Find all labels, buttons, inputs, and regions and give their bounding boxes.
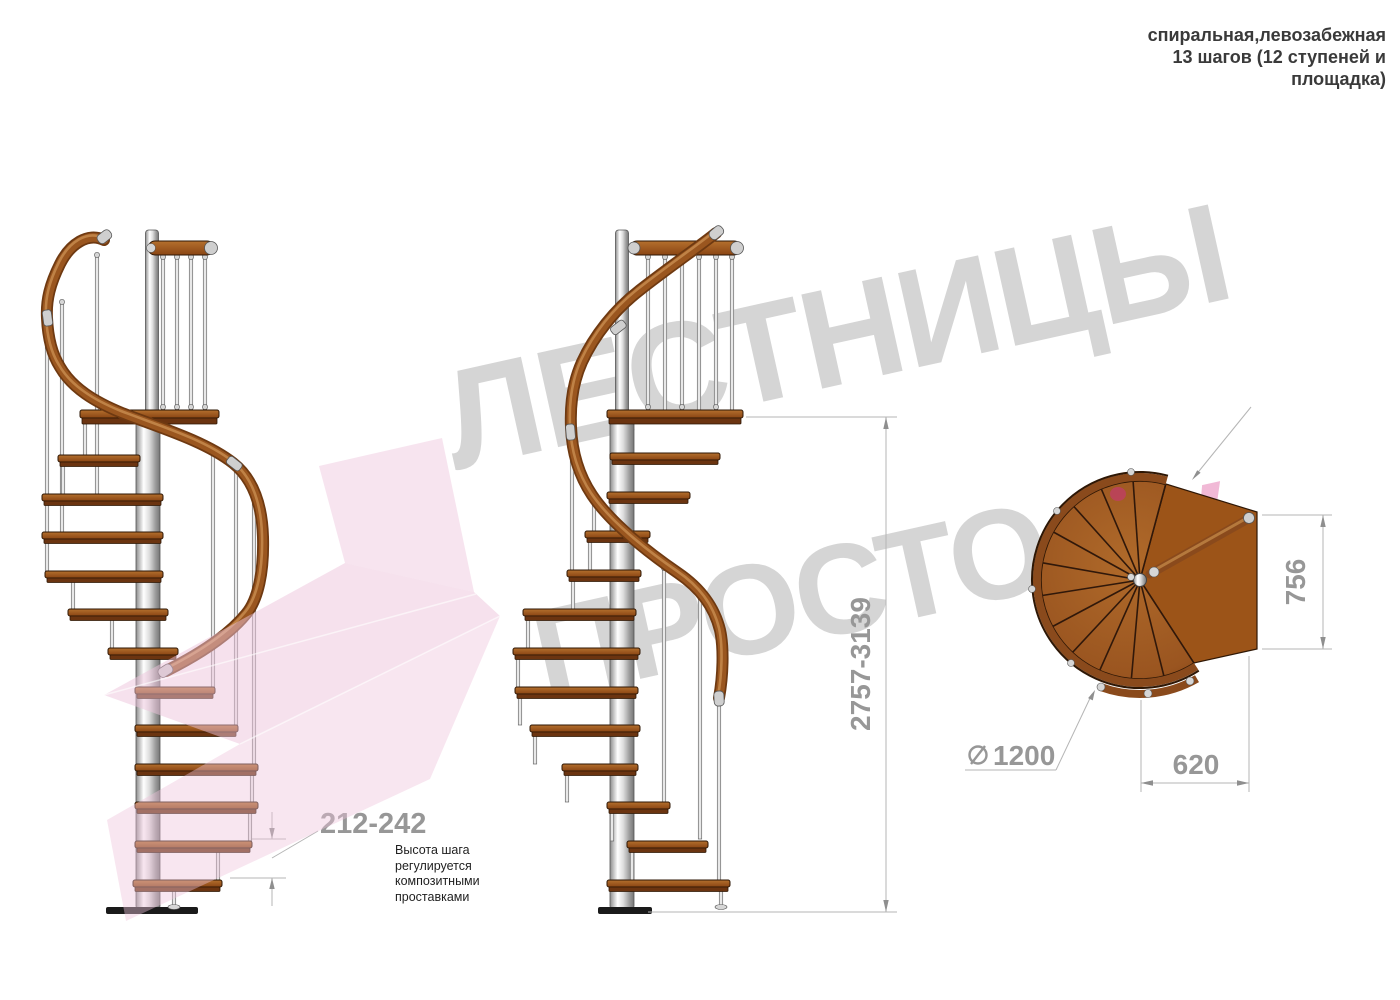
step [135,764,258,776]
plan-center-pole [1134,574,1147,587]
step [607,492,690,504]
title-line3: площадка) [1148,68,1386,90]
step [607,802,670,814]
newel-post [146,230,159,414]
landing-depth-label: 756 [1280,559,1311,606]
step [133,880,222,892]
step [42,494,163,506]
step [562,764,638,776]
dimension-landing-depth: 756 [1262,515,1332,649]
step [627,841,708,853]
landing-handrail [147,241,218,255]
tube-end-cap [1244,513,1255,524]
step [515,687,638,699]
diameter-icon [970,746,987,764]
rail-end-cap [205,242,218,255]
staircase-side-view-1 [42,228,263,914]
landing-width-label: 620 [1173,749,1220,780]
step-height-note: Высота шага регулируется композитными пр… [395,843,515,905]
title-line2: 13 шагов (12 ступеней и [1148,46,1386,68]
step [135,841,252,853]
step [135,687,215,699]
rail-end-cap [731,242,744,255]
landing-balusters [160,254,207,411]
step [58,455,140,467]
base-plate [598,907,652,914]
dimension-diameter: 1200 [965,690,1095,771]
step [68,609,168,621]
plan-center-knob [1128,574,1135,581]
drawing-title: спиральная,левозабежная 13 шагов (12 сту… [1148,24,1386,90]
step [513,648,640,660]
step-height-label: 212-242 [320,808,426,840]
rail-end-cap [628,242,640,254]
step [607,880,730,892]
step [135,725,238,737]
step [610,453,720,465]
watermark-word1: ЛЕСТНИЦЫ [428,173,1243,499]
step [108,648,178,660]
watermark-dot-overlay [1110,487,1126,501]
step [135,802,258,814]
base-plate [106,907,198,914]
landing-platform [607,410,743,424]
technical-drawing-page: ЛЕСТНИЦЫ ПРОСТО.Ру [0,0,1400,1000]
staircase-drawing: ЛЕСТНИЦЫ ПРОСТО.Ру [0,0,1400,1000]
total-height-label: 2757-3139 [845,597,876,731]
step [523,609,636,621]
step [567,570,641,582]
title-line1: спиральная,левозабежная [1148,24,1386,46]
step [530,725,640,737]
diameter-label: 1200 [993,740,1055,771]
step [42,532,163,544]
rail-bottom-cap [714,691,725,707]
step [45,571,163,583]
